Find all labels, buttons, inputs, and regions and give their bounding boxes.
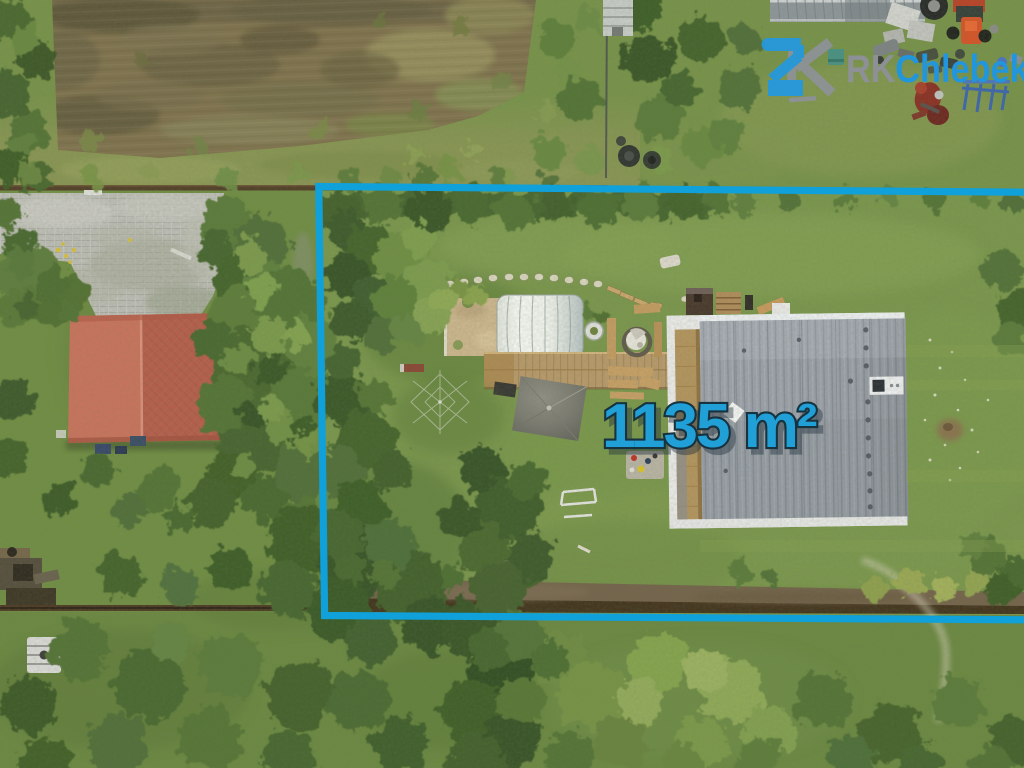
svg-text:RK: RK	[846, 47, 896, 91]
svg-text:Chlebek: Chlebek	[895, 47, 1024, 91]
svg-text:1135 m²: 1135 m²	[602, 392, 817, 461]
